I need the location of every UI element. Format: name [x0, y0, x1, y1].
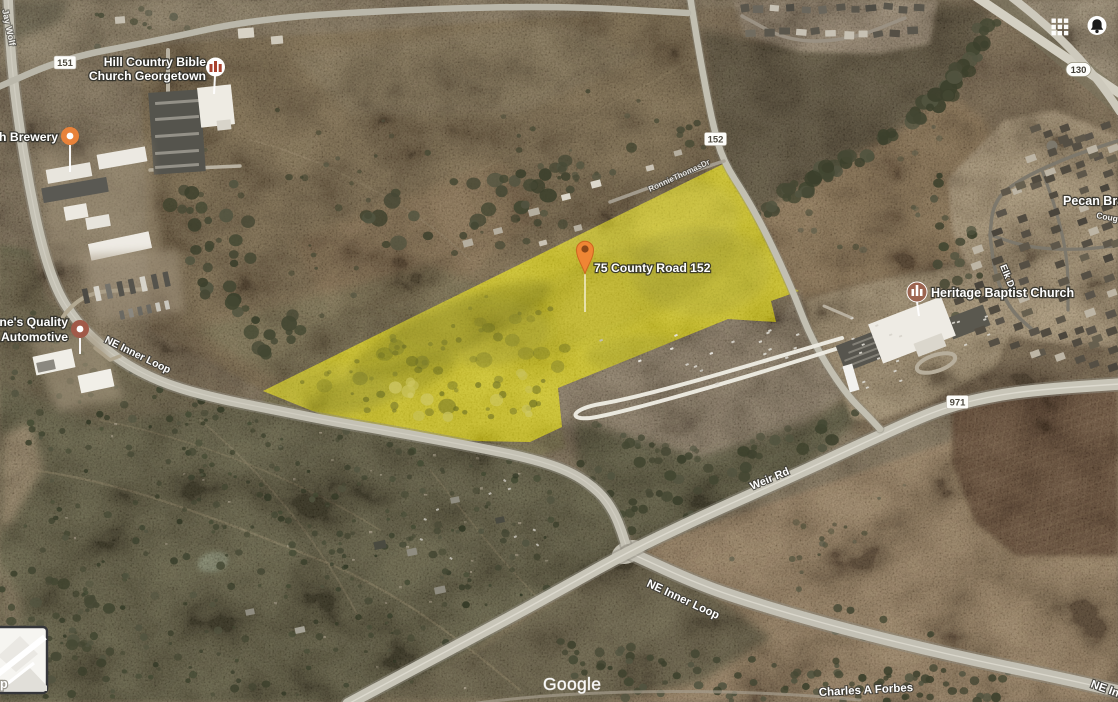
svg-text:Google: Google — [543, 674, 601, 694]
svg-text:152: 152 — [708, 134, 724, 145]
svg-text:75 County Road 152: 75 County Road 152 — [594, 261, 711, 275]
svg-text:971: 971 — [950, 397, 967, 408]
svg-text:Church Georgetown: Church Georgetown — [89, 69, 206, 83]
svg-text:Automotive: Automotive — [1, 330, 68, 344]
svg-text:151: 151 — [57, 58, 74, 69]
svg-text:130: 130 — [1071, 65, 1087, 76]
svg-text:ch Brewery: ch Brewery — [0, 130, 58, 144]
svg-text:Heritage Baptist Church: Heritage Baptist Church — [931, 286, 1074, 300]
svg-text:p: p — [0, 677, 8, 691]
svg-text:Hill Country Bible: Hill Country Bible — [104, 55, 206, 69]
svg-text:Pecan Bra: Pecan Bra — [1063, 194, 1118, 208]
svg-text:one's Quality: one's Quality — [0, 315, 68, 329]
